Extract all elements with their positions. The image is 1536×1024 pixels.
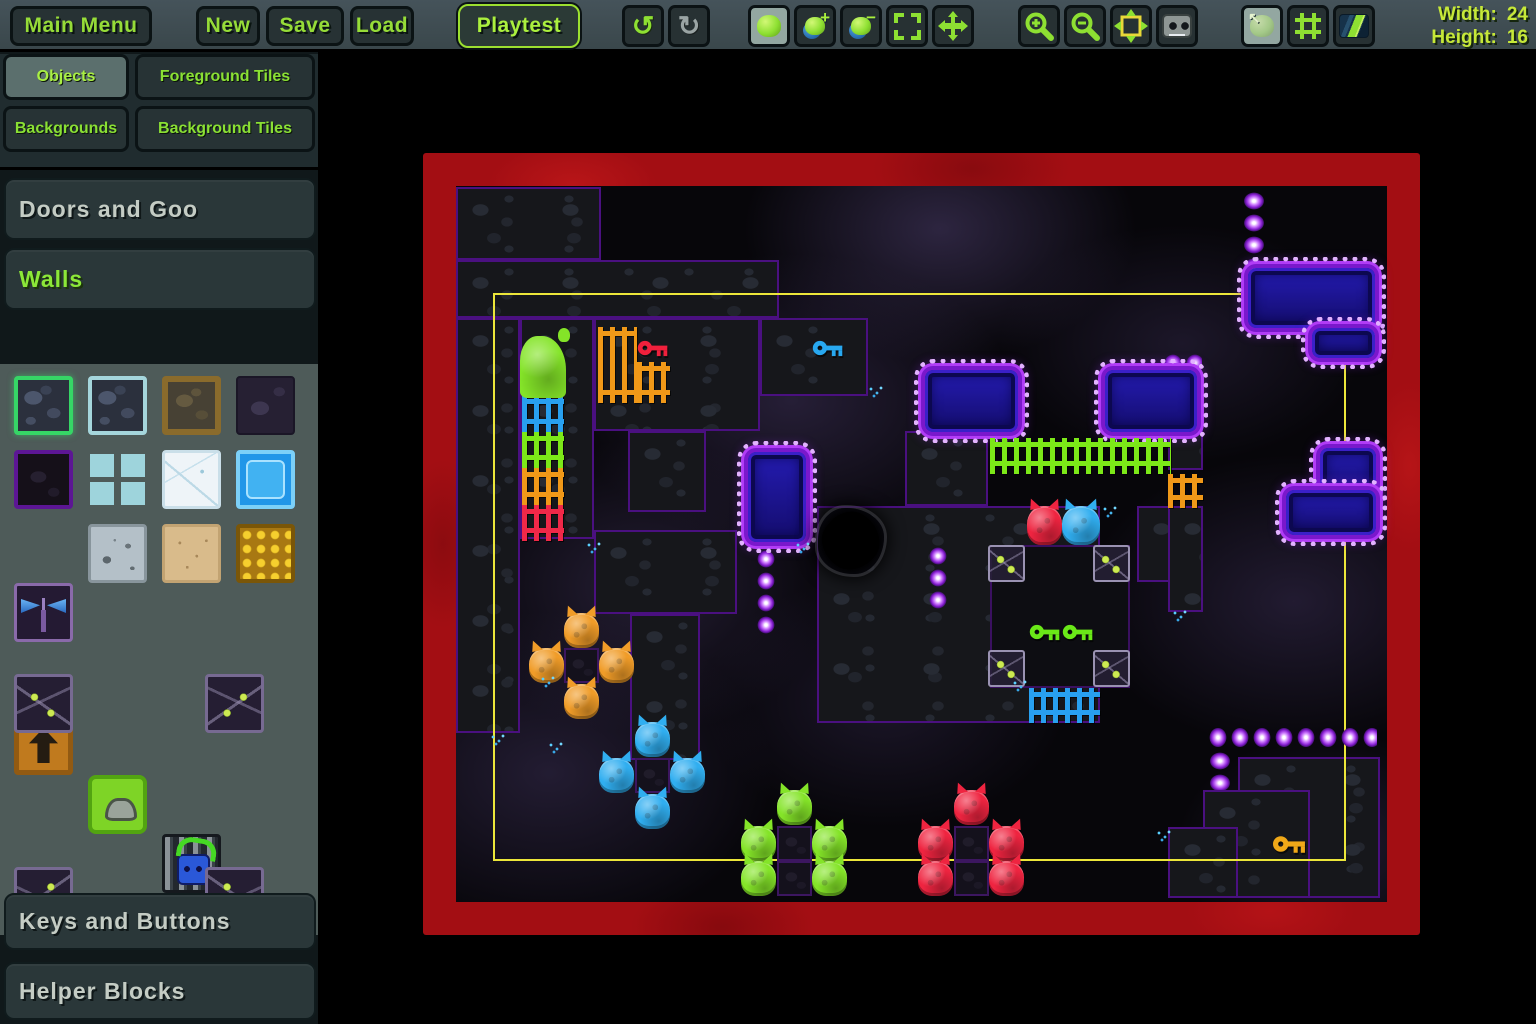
level-goo-orange[interactable] bbox=[564, 684, 599, 719]
level-goo-green[interactable] bbox=[812, 861, 847, 896]
level-drip bbox=[1102, 506, 1118, 518]
level-dark-tile[interactable] bbox=[954, 861, 989, 896]
level-key-orange[interactable] bbox=[1273, 833, 1307, 855]
save-button[interactable]: Save bbox=[266, 6, 344, 46]
level-goo-drip-green[interactable] bbox=[520, 336, 566, 398]
palette-tile-concrete[interactable] bbox=[88, 524, 147, 583]
palette-tile-rock-shadow[interactable] bbox=[236, 376, 295, 435]
width-value: 24 bbox=[1507, 3, 1528, 26]
level-goo-green[interactable] bbox=[741, 861, 776, 896]
level-dark-tile[interactable] bbox=[954, 826, 989, 861]
zoom-out-icon bbox=[1069, 10, 1101, 42]
tab-objects[interactable]: Objects bbox=[3, 54, 129, 100]
level-diamond-chain[interactable] bbox=[755, 548, 777, 635]
level-spike-wall[interactable] bbox=[925, 370, 1018, 432]
background-toggle-icon bbox=[1339, 14, 1369, 38]
toolbar-icon-group: +− bbox=[748, 5, 974, 47]
level-vine-tile[interactable] bbox=[1093, 545, 1130, 582]
level-drip bbox=[548, 742, 564, 754]
level-goo-blue[interactable] bbox=[635, 722, 670, 757]
level-goo-blue[interactable] bbox=[635, 794, 670, 829]
zoom-in-icon bbox=[1023, 10, 1055, 42]
level-diamond-chain[interactable] bbox=[1207, 750, 1233, 790]
level-drip bbox=[1012, 680, 1028, 692]
level-fence-blue[interactable] bbox=[1029, 688, 1100, 723]
level-goo-blue[interactable] bbox=[1062, 506, 1100, 545]
level-fence-orange[interactable] bbox=[637, 362, 670, 403]
ladder-segment bbox=[522, 432, 564, 469]
grid-toggle-button[interactable] bbox=[1287, 5, 1329, 47]
sidebar: ObjectsForeground TilesBackgroundsBackgr… bbox=[0, 52, 322, 1024]
level-goo-red[interactable] bbox=[954, 790, 989, 825]
section-header-label: Walls bbox=[19, 266, 83, 293]
level-diamond-chain[interactable] bbox=[927, 545, 949, 612]
level-goo-blue[interactable] bbox=[599, 758, 634, 793]
background-toggle-button[interactable] bbox=[1333, 5, 1375, 47]
level-key-green[interactable] bbox=[1029, 622, 1062, 642]
level-drip bbox=[1172, 610, 1188, 622]
level-spike-wall[interactable] bbox=[1286, 490, 1376, 535]
level-spike-wall[interactable] bbox=[1105, 370, 1197, 432]
level-rock-region[interactable] bbox=[456, 187, 601, 260]
toolbar-icon-group: ↖ bbox=[1241, 5, 1375, 47]
palette-tile-rock-green[interactable] bbox=[14, 376, 73, 435]
blob-add-button[interactable]: + bbox=[794, 5, 836, 47]
level-border-frame bbox=[423, 153, 1420, 935]
tile-palette bbox=[0, 364, 318, 935]
level-goo-green[interactable] bbox=[777, 790, 812, 825]
marquee-select-icon bbox=[894, 13, 921, 40]
palette-tile-moth-block[interactable] bbox=[14, 583, 73, 642]
level-key-blue[interactable] bbox=[812, 338, 845, 358]
section-keys-and-buttons[interactable]: Keys and Buttons bbox=[4, 893, 316, 950]
tab-backgrounds[interactable]: Backgrounds bbox=[3, 106, 129, 152]
palette-tile-dirt-brown[interactable] bbox=[162, 376, 221, 435]
level-drip bbox=[868, 386, 884, 398]
tab-background-tiles[interactable]: Background Tiles bbox=[135, 106, 315, 152]
width-label: Width: bbox=[1438, 3, 1497, 26]
level-fence-orange[interactable] bbox=[598, 327, 637, 403]
brush-blob-button[interactable] bbox=[748, 5, 790, 47]
level-splat[interactable] bbox=[818, 508, 884, 574]
palette-tile-goo-block[interactable] bbox=[88, 775, 147, 834]
zoom-out-button[interactable] bbox=[1064, 5, 1106, 47]
section-header-label: Helper Blocks bbox=[19, 978, 185, 1005]
level-drip bbox=[540, 676, 556, 688]
undo-icon: ↺ bbox=[632, 13, 655, 40]
palette-tile-vine-corner-v-tr[interactable] bbox=[205, 674, 264, 733]
level-goo-red[interactable] bbox=[989, 861, 1024, 896]
level-goo-red[interactable] bbox=[918, 861, 953, 896]
goo-brush-icon bbox=[757, 15, 781, 37]
level-dark-tile[interactable] bbox=[777, 861, 812, 896]
level-drip bbox=[490, 734, 506, 746]
palette-tile-sand[interactable] bbox=[162, 524, 221, 583]
new-button[interactable]: New bbox=[196, 6, 260, 46]
level-vine-tile[interactable] bbox=[1093, 650, 1130, 687]
plus-icon: + bbox=[820, 8, 830, 28]
level-goo-ladder[interactable] bbox=[522, 395, 564, 541]
undo-button[interactable]: ↺ bbox=[622, 5, 664, 47]
level-key-green[interactable] bbox=[1062, 622, 1095, 642]
level-editor-canvas[interactable] bbox=[322, 52, 1536, 1024]
level-goo-blue[interactable] bbox=[670, 758, 705, 793]
toolbar-icon-group bbox=[1018, 5, 1198, 47]
level-goo-orange[interactable] bbox=[564, 613, 599, 648]
sidebar-tab-panel: ObjectsForeground TilesBackgroundsBackgr… bbox=[0, 54, 318, 170]
toggle-faces-button[interactable] bbox=[1156, 5, 1198, 47]
minus-icon: − bbox=[866, 8, 876, 28]
level-key-red[interactable] bbox=[637, 338, 670, 358]
level-spike-wall[interactable] bbox=[1312, 328, 1375, 358]
move-icon bbox=[937, 10, 969, 42]
objects-layer-button[interactable]: ↖ bbox=[1241, 5, 1283, 47]
level-drip bbox=[795, 542, 811, 554]
ladder-segment bbox=[522, 468, 564, 505]
palette-tile-ice-blue[interactable] bbox=[236, 450, 295, 509]
section-helper-blocks[interactable]: Helper Blocks bbox=[4, 962, 316, 1020]
move-view-button[interactable] bbox=[932, 5, 974, 47]
faces-toggle-icon bbox=[1162, 14, 1192, 38]
section-header-label: Doors and Goo bbox=[19, 196, 198, 223]
canvas-size-readout: Width:24Height:16 bbox=[1431, 3, 1528, 49]
level-goo-orange[interactable] bbox=[599, 648, 634, 683]
zoom-in-button[interactable] bbox=[1018, 5, 1060, 47]
toolbar: Main MenuNewSaveLoadPlaytest↺↻+−↖Width:2… bbox=[0, 0, 1536, 52]
fit-view-button[interactable] bbox=[1110, 5, 1152, 47]
level-diamond-chain[interactable] bbox=[1207, 725, 1377, 750]
level-goo-red[interactable] bbox=[1027, 506, 1062, 545]
palette-tile-ice-white[interactable] bbox=[162, 450, 221, 509]
blob-remove-button[interactable]: − bbox=[840, 5, 882, 47]
palette-tile-mini-rocks[interactable] bbox=[88, 450, 147, 509]
level-dark-tile[interactable] bbox=[777, 826, 812, 861]
level-drip bbox=[1156, 830, 1172, 842]
cursor-icon: ↖ bbox=[1248, 9, 1261, 27]
level-drip bbox=[586, 542, 602, 554]
fit-view-icon bbox=[1114, 9, 1148, 43]
section-walls[interactable]: Walls bbox=[4, 248, 316, 310]
palette-tile-vine-corner-v-tl[interactable] bbox=[14, 674, 73, 733]
main-menu-button[interactable]: Main Menu bbox=[10, 6, 152, 46]
toolbar-icon-group: ↺↻ bbox=[622, 5, 710, 47]
level-fence-green[interactable] bbox=[990, 438, 1171, 474]
ladder-segment bbox=[522, 395, 564, 432]
marquee-select-button[interactable] bbox=[886, 5, 928, 47]
level-fence-orange[interactable] bbox=[1168, 474, 1203, 508]
height-label: Height: bbox=[1431, 26, 1496, 49]
level-spike-wall[interactable] bbox=[748, 452, 806, 542]
section-doors-and-goo[interactable]: Doors and Goo bbox=[4, 178, 316, 240]
level-area[interactable] bbox=[456, 186, 1387, 902]
section-header-label: Keys and Buttons bbox=[19, 908, 231, 935]
palette-tile-rock-crystal[interactable] bbox=[88, 376, 147, 435]
tab-foreground-tiles[interactable]: Foreground Tiles bbox=[135, 54, 315, 100]
level-vine-tile[interactable] bbox=[988, 545, 1025, 582]
load-button[interactable]: Load bbox=[350, 6, 414, 46]
level-spike-wall[interactable] bbox=[1248, 268, 1375, 328]
palette-tile-honeycomb[interactable] bbox=[236, 524, 295, 583]
redo-icon: ↻ bbox=[678, 13, 701, 40]
height-value: 16 bbox=[1507, 26, 1528, 49]
ladder-segment bbox=[522, 505, 564, 542]
grid-toggle-icon bbox=[1295, 13, 1321, 39]
playtest-button[interactable]: Playtest bbox=[458, 4, 580, 48]
redo-button[interactable]: ↻ bbox=[668, 5, 710, 47]
palette-tile-rock-purple[interactable] bbox=[14, 450, 73, 509]
